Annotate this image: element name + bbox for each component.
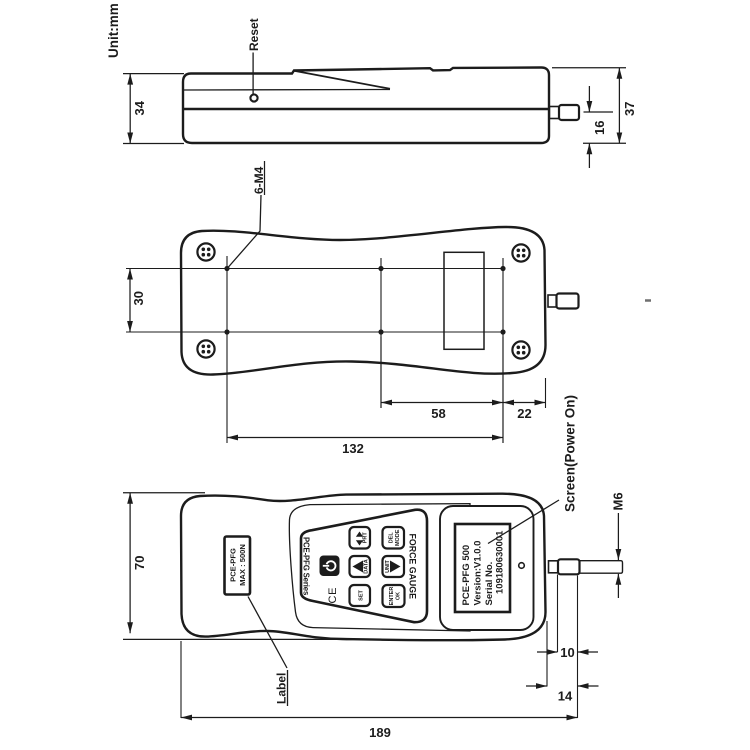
svg-text:34: 34 [132,100,147,115]
svg-text:Serial No.: Serial No. [484,562,495,606]
svg-text:14: 14 [558,689,573,704]
svg-text:Label: Label [275,673,289,704]
svg-text:Version:V1.0.0: Version:V1.0.0 [473,541,484,606]
svg-text:PCE-PFG: PCE-PFG [229,548,238,582]
svg-text:189: 189 [369,725,391,740]
svg-text:OK: OK [396,592,402,600]
svg-text:109180630001: 109180630001 [495,530,506,594]
svg-text:MODE: MODE [395,529,401,546]
svg-text:37: 37 [622,102,637,116]
svg-text:DEL: DEL [389,532,395,544]
svg-text:SET: SET [359,590,365,601]
svg-text:UNIT: UNIT [385,559,391,572]
svg-text:22: 22 [517,406,531,421]
svg-text:MAX : 500N: MAX : 500N [238,544,247,586]
svg-text:Screen(Power On): Screen(Power On) [563,395,578,512]
svg-text:DATA: DATA [364,559,370,573]
svg-text:30: 30 [131,291,146,305]
svg-text:132: 132 [342,441,364,456]
svg-text:16: 16 [592,121,607,135]
svg-text:FORCE GAUGE: FORCE GAUGE [408,534,418,600]
svg-text:ENTER: ENTER [389,587,395,606]
svg-text:10: 10 [560,645,574,660]
svg-text:58: 58 [431,406,445,421]
svg-text:70: 70 [132,556,147,570]
svg-text:CE: CE [327,587,339,604]
svg-text:PCE-PFG 500: PCE-PFG 500 [461,545,472,606]
svg-text:Reset: Reset [247,18,261,51]
svg-text:PRT: PRT [363,532,369,544]
svg-text:Unit:mm: Unit:mm [106,3,121,58]
svg-text:M6: M6 [611,492,626,510]
svg-text:PCE-PFG Series: PCE-PFG Series [302,537,311,596]
